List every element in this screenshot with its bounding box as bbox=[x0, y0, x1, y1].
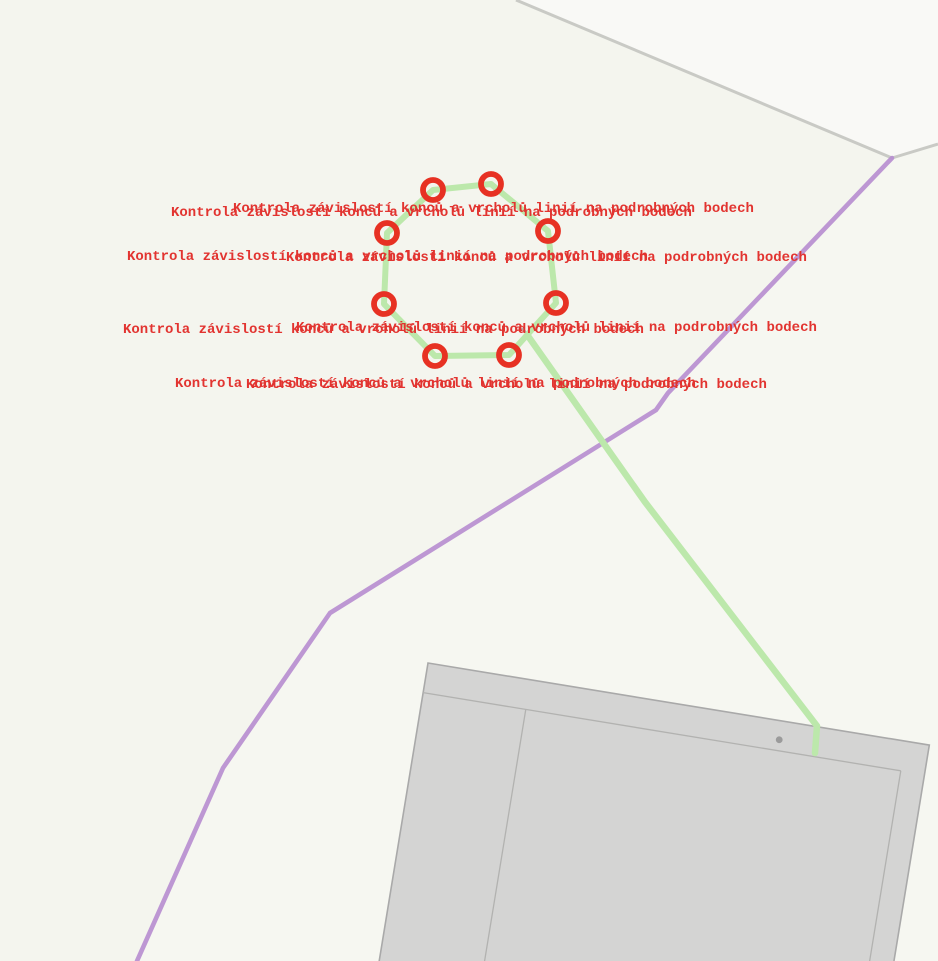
map-canvas[interactable]: Kontrola závislostí konců a vrcholů lini… bbox=[0, 0, 938, 961]
background-patch bbox=[516, 0, 938, 158]
check-line-octagon bbox=[384, 184, 556, 356]
map-feature-layer bbox=[0, 0, 938, 961]
